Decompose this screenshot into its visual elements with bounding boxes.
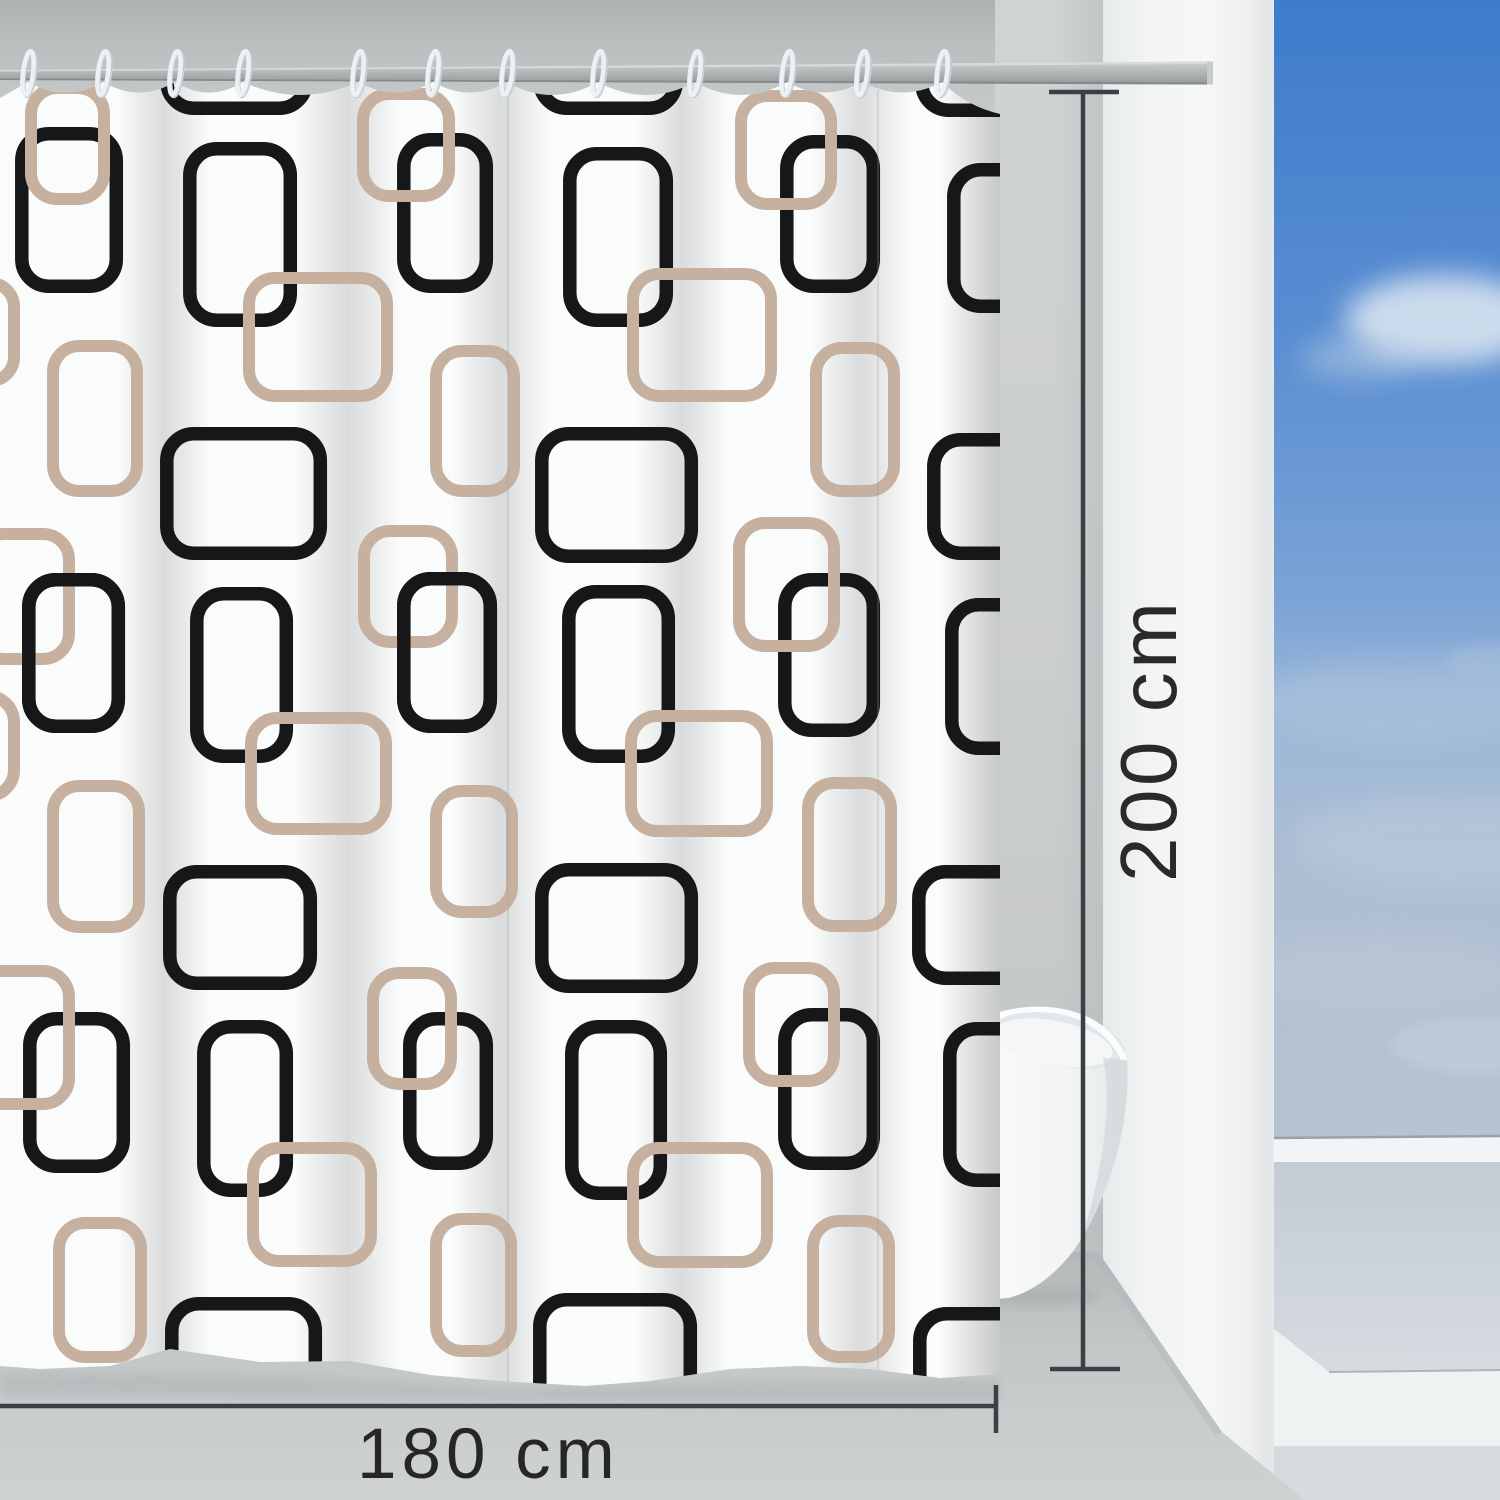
svg-text:180 cm: 180 cm (357, 1415, 620, 1494)
svg-text:200 cm: 200 cm (1104, 599, 1193, 882)
